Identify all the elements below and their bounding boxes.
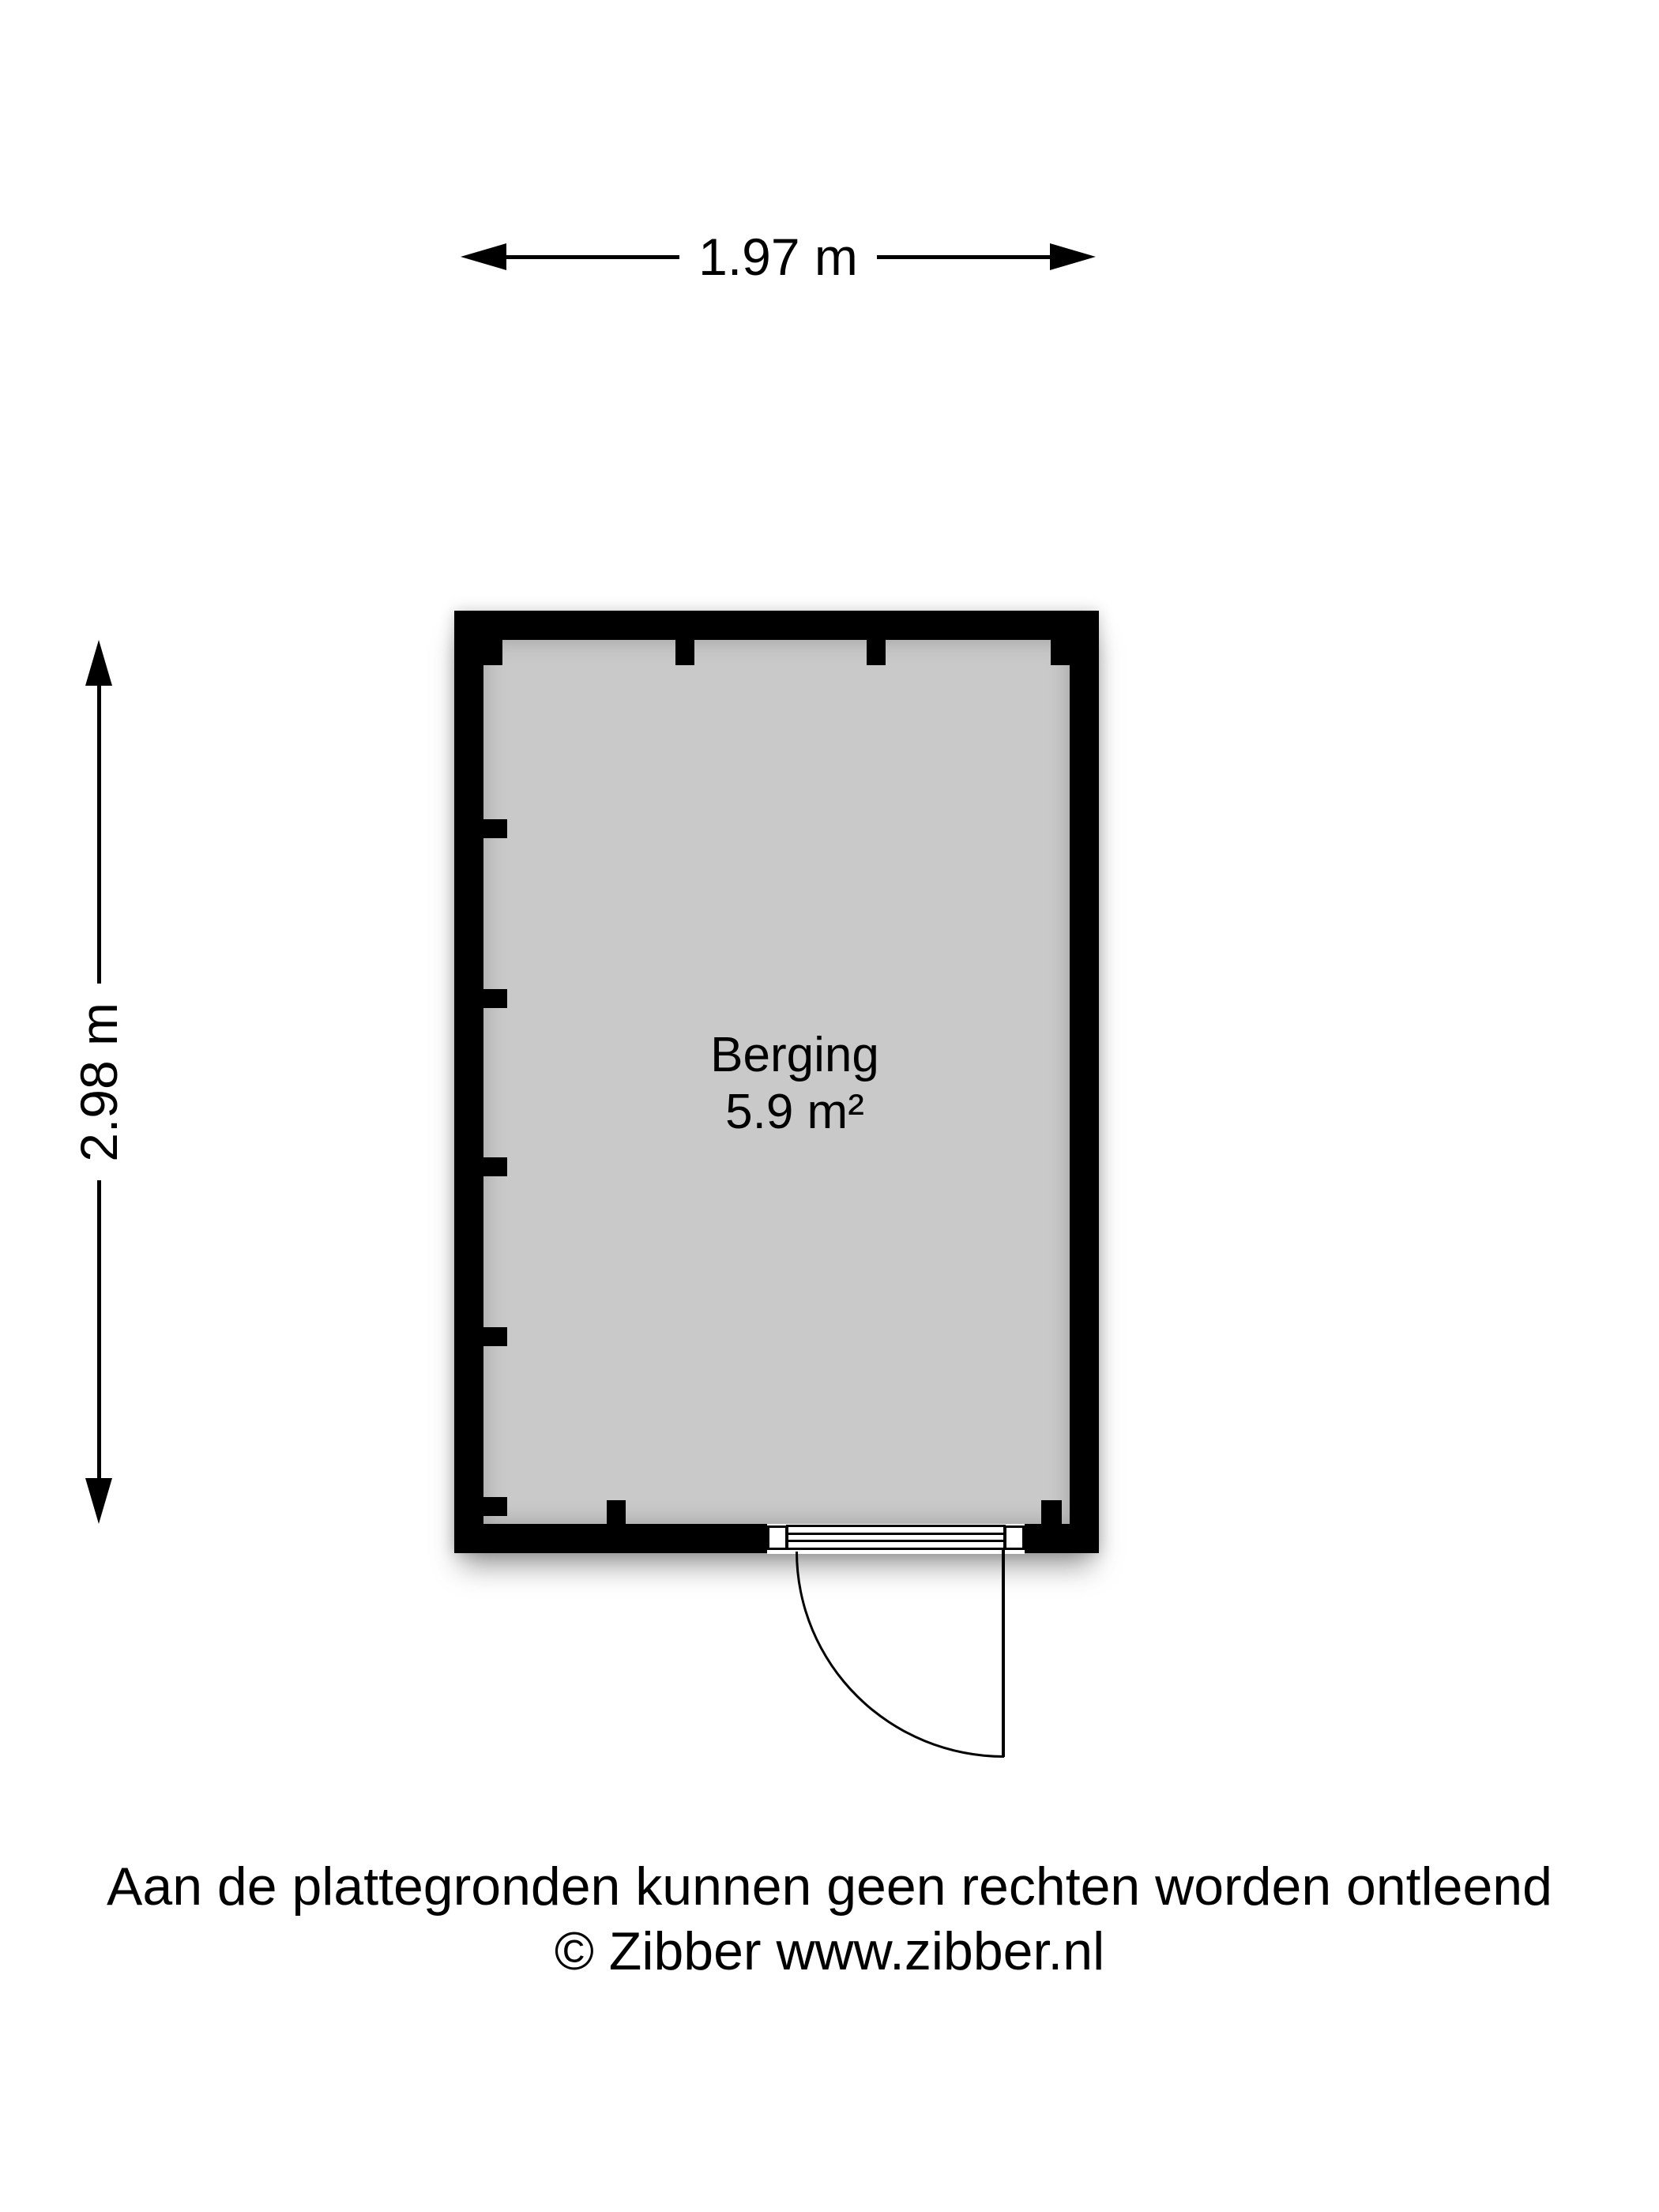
wall-tick: [483, 1327, 507, 1346]
width-dimension: 1.97 m: [461, 231, 1096, 283]
height-dimension-label: 2.98 m: [73, 984, 125, 1181]
wall-tick: [1041, 1500, 1062, 1524]
height-dimension: 2.98 m: [73, 640, 125, 1524]
wall-tick: [1051, 640, 1070, 665]
room-name: Berging: [710, 1027, 879, 1084]
wall-tick: [483, 819, 507, 838]
door-jamb-left: [767, 1525, 788, 1550]
door-jamb-right: [1004, 1525, 1025, 1550]
arrow-left-icon: [461, 243, 506, 270]
arrow-right-icon: [1050, 243, 1096, 270]
room-area: 5.9 m²: [710, 1084, 879, 1141]
door-threshold: [786, 1525, 1006, 1550]
room-label: Berging 5.9 m²: [710, 1027, 879, 1141]
wall-tick: [483, 1497, 507, 1516]
arrow-up-icon: [85, 640, 112, 686]
dimension-line: [506, 255, 679, 259]
arrow-down-icon: [85, 1478, 112, 1524]
wall-tick: [483, 1157, 507, 1176]
wall-tick: [483, 640, 502, 665]
dimension-line: [877, 255, 1050, 259]
wall-tick: [607, 1500, 626, 1524]
floorplan-canvas: 1.97 m 2.98 m Berging 5.9 m² Aan de plat…: [0, 0, 1659, 2212]
wall-tick: [675, 640, 694, 665]
disclaimer-text: Aan de plattegronden kunnen geen rechten…: [0, 1854, 1659, 1919]
copyright-text: © Zibber www.zibber.nl: [0, 1919, 1659, 1984]
dimension-line: [97, 1180, 101, 1478]
dimension-line: [97, 686, 101, 984]
wall-tick: [867, 640, 886, 665]
door-swing-arc: [796, 1552, 1004, 1758]
wall-tick: [483, 989, 507, 1008]
width-dimension-label: 1.97 m: [679, 231, 877, 283]
